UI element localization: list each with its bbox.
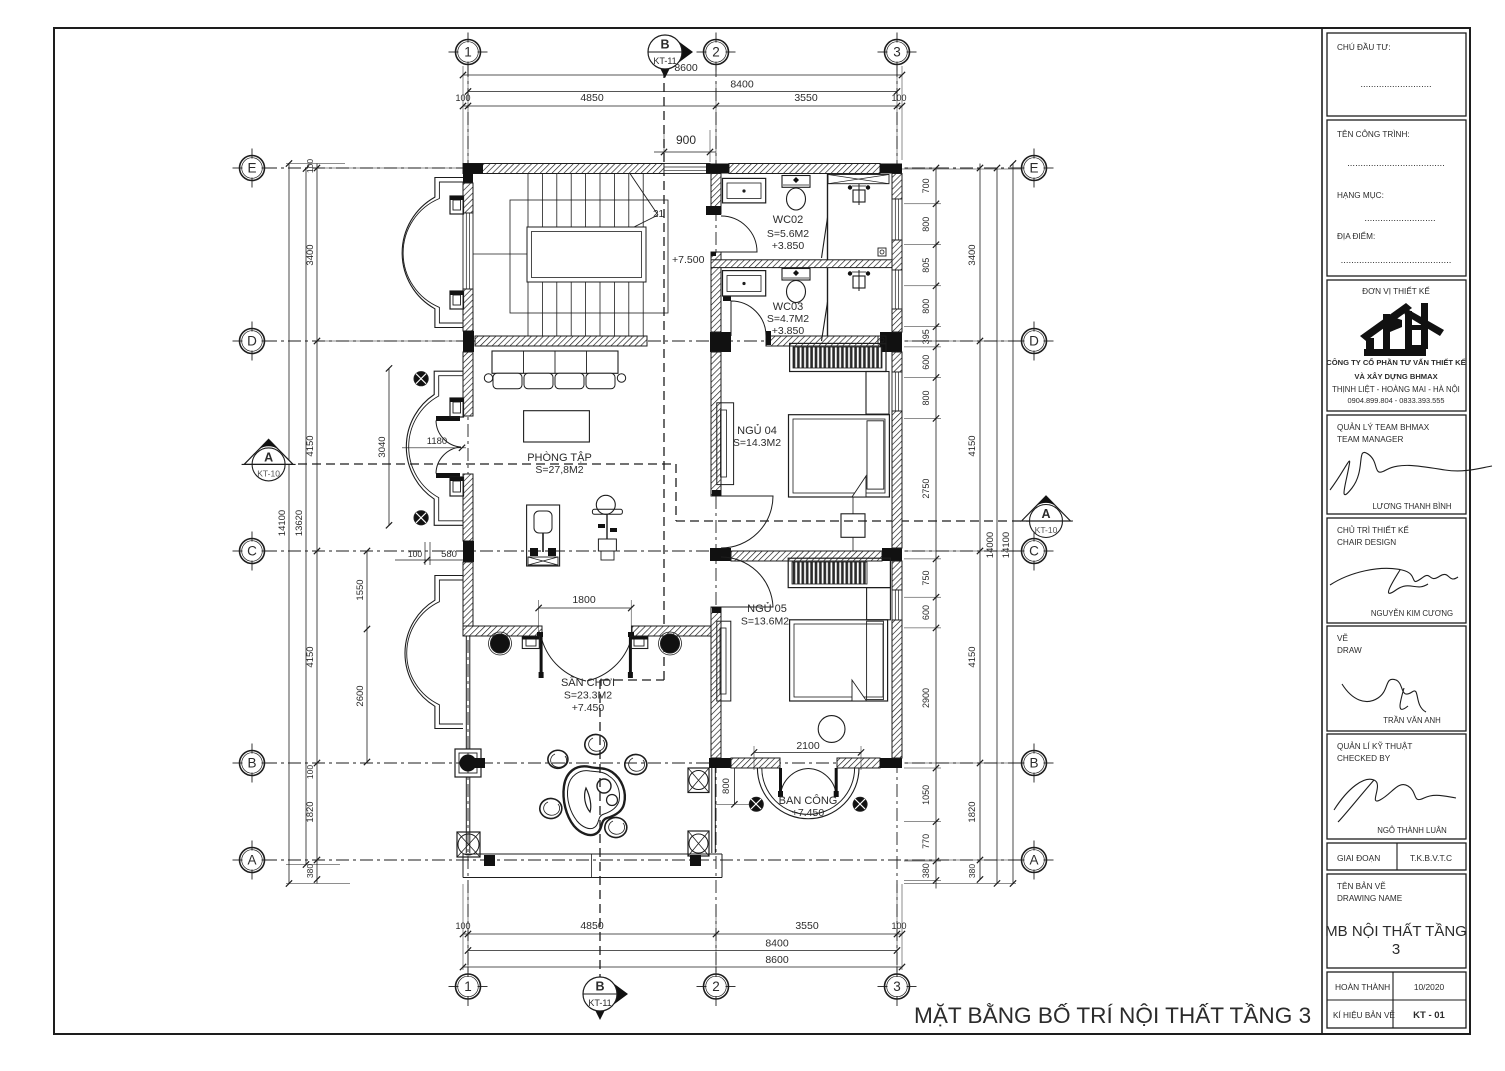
svg-text:21: 21 [653, 209, 665, 220]
svg-text:B: B [595, 980, 604, 994]
svg-text:1180: 1180 [427, 436, 447, 447]
svg-text:800: 800 [921, 217, 931, 232]
svg-text:S=27,8M2: S=27,8M2 [535, 464, 583, 476]
svg-text:3400: 3400 [305, 244, 316, 265]
svg-text:TÊN CÔNG TRÌNH:: TÊN CÔNG TRÌNH: [1337, 129, 1410, 139]
svg-text:8600: 8600 [765, 954, 789, 966]
svg-text:S=14.3M2: S=14.3M2 [733, 437, 781, 449]
svg-text:2: 2 [712, 45, 720, 60]
svg-text:805: 805 [921, 258, 931, 273]
svg-text:100: 100 [408, 549, 422, 559]
svg-text:A: A [264, 450, 273, 464]
svg-text:DRAWING NAME: DRAWING NAME [1337, 894, 1403, 903]
svg-text:VẼ: VẼ [1337, 633, 1348, 643]
svg-text:+3.850: +3.850 [772, 240, 805, 252]
svg-text:KÍ HIỆU BẢN VẼ: KÍ HIỆU BẢN VẼ [1333, 1009, 1395, 1020]
svg-text:LƯƠNG THANH BÌNH: LƯƠNG THANH BÌNH [1372, 502, 1451, 511]
svg-text:1: 1 [464, 45, 472, 60]
svg-text:3550: 3550 [794, 92, 818, 104]
svg-text:13620: 13620 [294, 510, 305, 536]
svg-text:KT-10: KT-10 [1035, 525, 1058, 535]
svg-text:NGỦ 04: NGỦ 04 [737, 424, 777, 437]
svg-text:380: 380 [305, 864, 315, 878]
svg-text:KT-10: KT-10 [257, 468, 280, 478]
svg-text:600: 600 [921, 355, 931, 370]
svg-text:2900: 2900 [921, 688, 931, 708]
svg-text:S=4.7M2: S=4.7M2 [767, 313, 809, 325]
svg-text:14000: 14000 [985, 532, 996, 558]
svg-text:S=23.3M2: S=23.3M2 [564, 690, 612, 702]
svg-text:B: B [660, 38, 669, 52]
svg-text:D: D [247, 334, 257, 349]
svg-text:700: 700 [921, 178, 931, 193]
svg-text:4850: 4850 [580, 92, 604, 104]
svg-text:SÂN CHƠI: SÂN CHƠI [561, 676, 615, 689]
svg-text:8400: 8400 [730, 79, 754, 91]
svg-text:D: D [1029, 334, 1039, 349]
svg-text:A: A [1041, 507, 1050, 521]
svg-text:QUẢN LÍ KỸ THUẬT: QUẢN LÍ KỸ THUẬT [1337, 740, 1412, 751]
svg-text:+3.850: +3.850 [772, 325, 805, 337]
svg-text:B: B [1029, 756, 1038, 771]
svg-text:S=13.6M2: S=13.6M2 [741, 616, 789, 628]
svg-text:TÊN BẢN VẼ: TÊN BẢN VẼ [1337, 880, 1386, 891]
svg-text:800: 800 [921, 299, 931, 314]
svg-text:CHÚ ĐẦU TƯ:: CHÚ ĐẦU TƯ: [1337, 42, 1391, 52]
svg-text:MẶT BẰNG BỐ TRÍ NỘI THẤT TẦNG: MẶT BẰNG BỐ TRÍ NỘI THẤT TẦNG 3 [914, 1002, 1311, 1028]
svg-text:E: E [247, 161, 256, 176]
svg-text:..............................: ..................................... [1347, 158, 1445, 169]
svg-text:4150: 4150 [967, 646, 978, 667]
svg-text:HẠNG MỤC:: HẠNG MỤC: [1337, 191, 1384, 200]
svg-text:CHỦ TRÌ THIẾT KẾ: CHỦ TRÌ THIẾT KẾ [1337, 524, 1409, 535]
svg-text:KT-11: KT-11 [588, 998, 611, 1008]
svg-text:1: 1 [464, 979, 472, 994]
svg-text:100: 100 [305, 159, 315, 173]
svg-text:10/2020: 10/2020 [1414, 982, 1445, 992]
svg-text:+7.450: +7.450 [792, 807, 825, 819]
svg-text:1820: 1820 [305, 801, 316, 822]
svg-text:3: 3 [893, 45, 901, 60]
svg-text:GIAI ĐOẠN: GIAI ĐOẠN [1337, 853, 1380, 863]
svg-text:CHAIR DESIGN: CHAIR DESIGN [1337, 538, 1396, 547]
svg-text:ĐỊA ĐIỂM:: ĐỊA ĐIỂM: [1337, 230, 1375, 241]
svg-text:C: C [1029, 544, 1039, 559]
svg-text:3550: 3550 [795, 920, 819, 932]
svg-text:2: 2 [712, 979, 720, 994]
svg-text:KT - 01: KT - 01 [1413, 1010, 1445, 1021]
svg-text:4150: 4150 [967, 435, 978, 456]
svg-text:3: 3 [1392, 941, 1400, 958]
svg-text:3: 3 [893, 979, 901, 994]
svg-text:1800: 1800 [572, 594, 596, 606]
svg-text:4150: 4150 [305, 435, 316, 456]
svg-text:2750: 2750 [921, 479, 931, 499]
svg-text:A: A [247, 853, 256, 868]
svg-text:8400: 8400 [765, 938, 789, 950]
svg-text:+7.500: +7.500 [672, 254, 705, 266]
svg-text:CÔNG TY CỔ PHẦN TƯ VẤN THIẾT K: CÔNG TY CỔ PHẦN TƯ VẤN THIẾT KẾ [1326, 357, 1465, 367]
svg-text:C: C [247, 544, 257, 559]
svg-text:3400: 3400 [967, 244, 978, 265]
svg-text:TRẦN VĂN ANH: TRẦN VĂN ANH [1383, 715, 1441, 725]
svg-text:2100: 2100 [796, 740, 820, 752]
svg-text:1050: 1050 [921, 785, 931, 805]
svg-text:3040: 3040 [377, 436, 388, 457]
svg-text:14100: 14100 [277, 510, 288, 536]
svg-text:800: 800 [721, 778, 732, 794]
svg-text:NGÔ THÀNH LUÂN: NGÔ THÀNH LUÂN [1377, 826, 1447, 835]
svg-text:CHECKED BY: CHECKED BY [1337, 754, 1391, 763]
svg-text:1550: 1550 [355, 579, 366, 600]
svg-text:800: 800 [921, 390, 931, 405]
svg-text:600: 600 [921, 605, 931, 620]
svg-text:E: E [1029, 161, 1038, 176]
svg-text:QUẢN LÝ TEAM BHMAX: QUẢN LÝ TEAM BHMAX [1337, 421, 1430, 432]
svg-text:900: 900 [676, 133, 696, 147]
svg-text:MB NỘI THẤT TẦNG: MB NỘI THẤT TẦNG [1325, 923, 1467, 940]
svg-text:14100: 14100 [1001, 532, 1012, 558]
svg-text:395: 395 [921, 329, 931, 344]
svg-text:PHÒNG TẬP: PHÒNG TẬP [527, 451, 592, 464]
svg-text:380: 380 [967, 864, 977, 878]
svg-text:KT-11: KT-11 [653, 56, 676, 66]
svg-text:ĐƠN VỊ THIẾT KẾ: ĐƠN VỊ THIẾT KẾ [1362, 286, 1430, 296]
svg-text:1820: 1820 [967, 801, 978, 822]
svg-text:100: 100 [305, 765, 315, 779]
svg-text:BAN CÔNG: BAN CÔNG [779, 794, 838, 807]
svg-text:B: B [247, 756, 256, 771]
svg-text:100: 100 [891, 93, 906, 103]
svg-text:100: 100 [891, 921, 906, 931]
svg-text:380: 380 [921, 863, 931, 878]
svg-text:..............................: ........................................… [1341, 255, 1452, 266]
svg-text:VÀ XÂY DỰNG BHMAX: VÀ XÂY DỰNG BHMAX [1354, 372, 1437, 381]
svg-text:...........................: ........................... [1364, 213, 1435, 224]
svg-text:770: 770 [921, 834, 931, 849]
svg-text:WC02: WC02 [773, 214, 804, 226]
svg-text:TEAM MANAGER: TEAM MANAGER [1337, 435, 1404, 444]
svg-text:4850: 4850 [580, 920, 604, 932]
svg-text:4150: 4150 [305, 646, 316, 667]
svg-text:A: A [1029, 853, 1038, 868]
svg-text:...........................: ........................... [1360, 79, 1431, 90]
svg-text:2600: 2600 [355, 685, 366, 706]
svg-text:0904.899.804 - 0833.393.555: 0904.899.804 - 0833.393.555 [1348, 396, 1445, 405]
svg-text:+7.450: +7.450 [572, 702, 605, 714]
svg-text:NGỦ 05: NGỦ 05 [747, 602, 787, 615]
svg-text:580: 580 [441, 549, 457, 560]
svg-text:HOÀN THÀNH: HOÀN THÀNH [1335, 982, 1390, 992]
svg-text:T.K.B.V.T.C: T.K.B.V.T.C [1410, 853, 1452, 863]
svg-text:750: 750 [921, 571, 931, 586]
svg-text:S=5.6M2: S=5.6M2 [767, 228, 809, 240]
svg-text:NGUYỄN KIM CƯƠNG: NGUYỄN KIM CƯƠNG [1371, 609, 1453, 618]
svg-text:THỊNH LIỆT - HOÀNG MAI - HÀ NỘ: THỊNH LIỆT - HOÀNG MAI - HÀ NỘI [1332, 385, 1460, 394]
svg-text:WC03: WC03 [773, 301, 804, 313]
svg-text:DRAW: DRAW [1337, 646, 1362, 655]
